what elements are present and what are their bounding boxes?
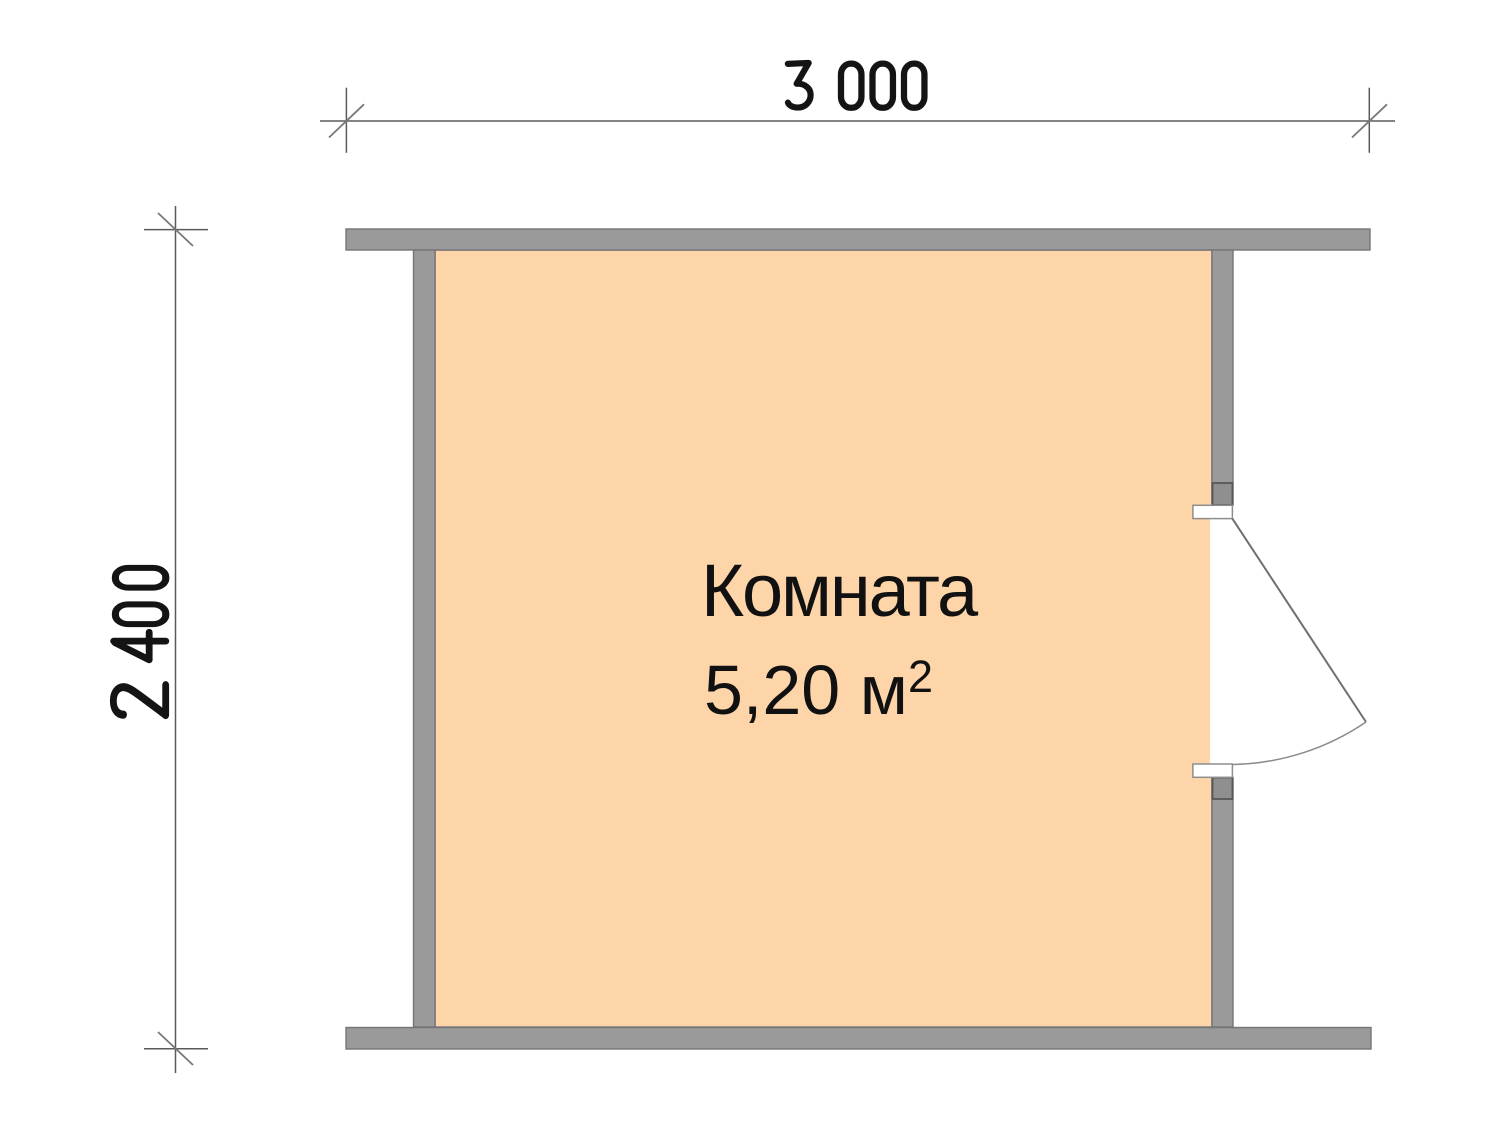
- svg-text:5,20 м: 5,20 м: [704, 651, 908, 729]
- svg-text:2: 2: [908, 651, 933, 702]
- svg-text:Комната: Комната: [701, 549, 979, 632]
